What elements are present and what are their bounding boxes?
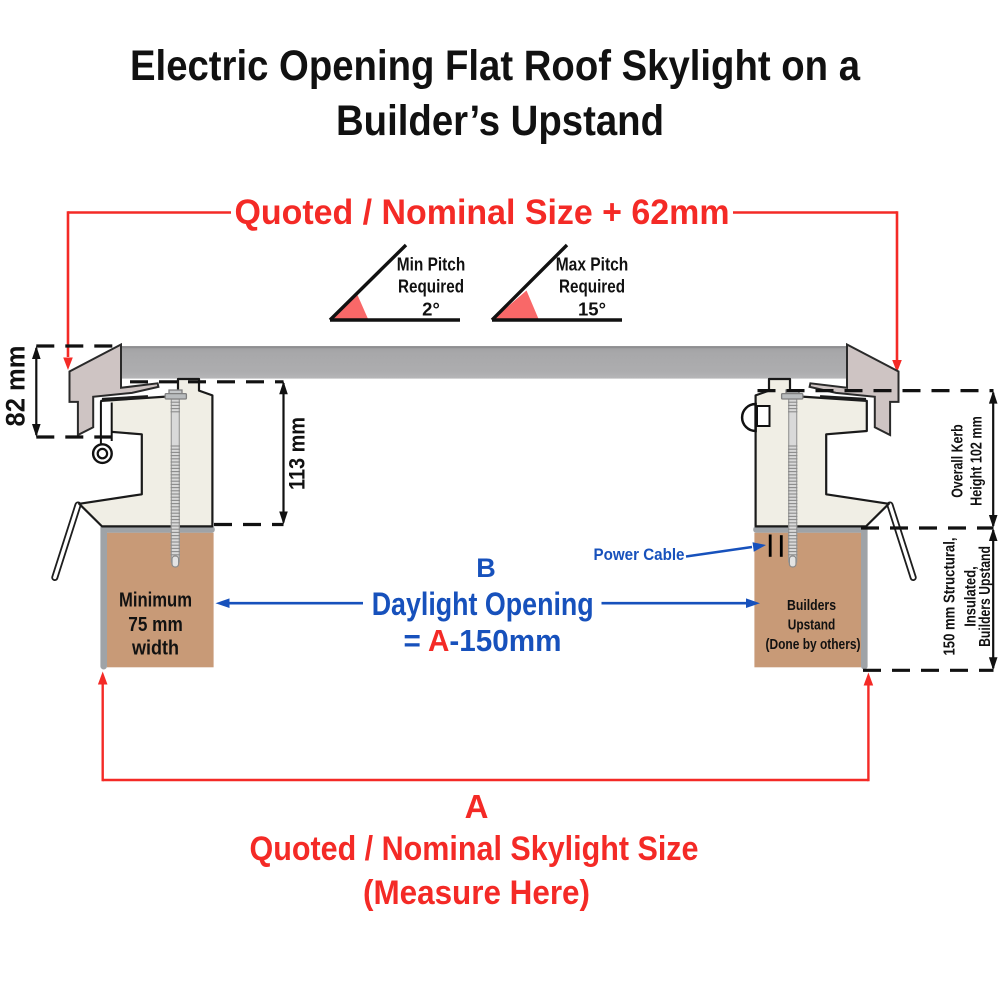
svg-text:(Done by others): (Done by others): [766, 637, 861, 653]
svg-text:width: width: [131, 638, 179, 660]
svg-text:Max Pitch: Max Pitch: [556, 254, 629, 275]
svg-text:Overall Kerb: Overall Kerb: [950, 424, 967, 498]
svg-text:82 mm: 82 mm: [1, 346, 31, 427]
svg-text:Electric Opening Flat Roof Sky: Electric Opening Flat Roof Skylight on a: [130, 42, 861, 90]
svg-text:Quoted / Nominal Size + 62mm: Quoted / Nominal Size + 62mm: [235, 193, 730, 232]
svg-text:(Measure Here): (Measure Here): [363, 874, 590, 912]
svg-text:Power Cable: Power Cable: [594, 545, 685, 564]
svg-text:113 mm: 113 mm: [285, 417, 310, 490]
svg-text:Minimum: Minimum: [119, 590, 192, 612]
svg-text:Builders: Builders: [787, 598, 836, 614]
svg-text:B: B: [476, 553, 496, 583]
svg-text:Quoted / Nominal Skylight Size: Quoted / Nominal Skylight Size: [250, 830, 699, 868]
svg-text:Required: Required: [559, 276, 625, 297]
svg-text:A: A: [465, 788, 489, 825]
svg-text:Builders Upstand: Builders Upstand: [977, 546, 994, 647]
svg-text:2°: 2°: [422, 299, 440, 320]
svg-text:Upstand: Upstand: [788, 618, 836, 634]
svg-text:Builder’s Upstand: Builder’s Upstand: [336, 97, 664, 145]
svg-text:15°: 15°: [578, 299, 606, 320]
svg-text:= A-150mm: = A-150mm: [404, 624, 562, 658]
svg-text:75 mm: 75 mm: [128, 614, 183, 636]
svg-text:Required: Required: [398, 276, 464, 297]
svg-text:Height 102 mm: Height 102 mm: [969, 416, 986, 506]
svg-text:150 mm Structural,: 150 mm Structural,: [942, 538, 959, 656]
svg-text:Daylight Opening: Daylight Opening: [372, 586, 594, 622]
svg-text:Min Pitch: Min Pitch: [397, 254, 466, 275]
